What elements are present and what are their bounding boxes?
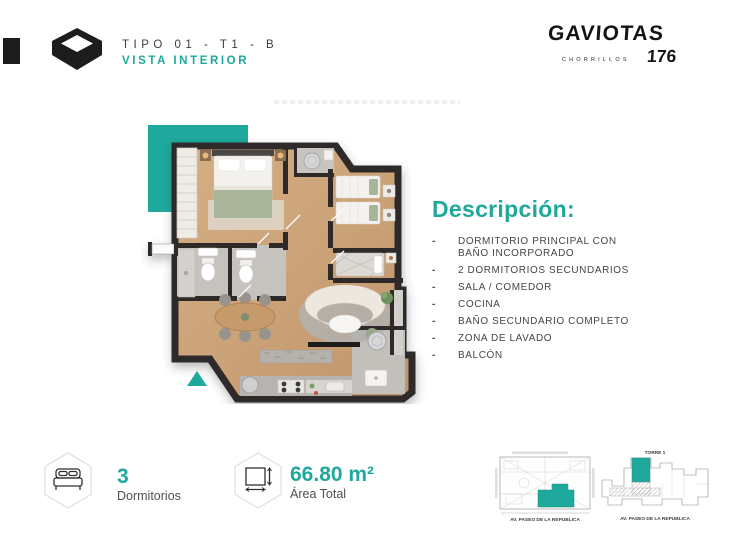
list-item: - SALA / COMEDOR xyxy=(432,282,632,294)
hatched-corridor-band xyxy=(610,488,660,496)
brand-district: CHORRILLOS xyxy=(562,57,630,67)
floor-plan-image xyxy=(140,112,430,404)
area-stat: 66.80 m² Área Total xyxy=(290,465,374,501)
list-item: - DORMITORIO PRINCIPAL CON BAÑO INCORPOR… xyxy=(432,236,632,260)
tower-section-map: TORRE 1 AV. PASEO DE LA REPUBLICA xyxy=(598,444,712,524)
site-location-map: AV. PASEO DE LA REPUBLICA xyxy=(494,450,596,524)
tower-label: TORRE 1 xyxy=(645,450,666,456)
developer-logo-icon xyxy=(50,26,104,72)
description-section: Descripción: - DORMITORIO PRINCIPAL CON … xyxy=(432,196,632,367)
bullet-dash: - xyxy=(432,350,458,362)
bedrooms-label: Dormitorios xyxy=(117,489,181,503)
view-label: VISTA INTERIOR xyxy=(122,55,278,67)
brand-number: 176 xyxy=(646,46,677,67)
bullet-dash: - xyxy=(432,316,458,328)
bedrooms-value: 3 xyxy=(117,467,181,487)
highlighted-tower-unit xyxy=(632,458,650,482)
dimension-line xyxy=(502,512,588,515)
area-label: Área Total xyxy=(290,487,374,501)
floor-plan-body xyxy=(148,146,412,399)
dining-furniture xyxy=(215,292,275,342)
brand-logo: GAVIOTAS CHORRILLOS 176 xyxy=(548,22,678,67)
building-footprint-outline xyxy=(602,458,708,505)
bedrooms-stat: 3 Dormitorios xyxy=(117,467,181,503)
area-stat-hexagon xyxy=(233,452,283,509)
description-list: - DORMITORIO PRINCIPAL CON BAÑO INCORPOR… xyxy=(432,236,632,362)
map-caption: AV. PASEO DE LA REPUBLICA xyxy=(620,516,690,522)
list-item: - ZONA DE LAVADO xyxy=(432,333,632,345)
entrance-triangle-marker xyxy=(187,371,207,386)
list-item: - BAÑO SECUNDARIO COMPLETO xyxy=(432,316,632,328)
entry-door xyxy=(148,242,178,256)
description-title: Descripción: xyxy=(432,196,632,223)
bullet-dash: - xyxy=(432,236,458,260)
bullet-dash: - xyxy=(432,299,458,311)
plan-type-label: TIPO 01 - T1 - B xyxy=(122,39,278,51)
list-item: - COCINA xyxy=(432,299,632,311)
map-caption: AV. PASEO DE LA REPUBLICA xyxy=(510,517,580,523)
bullet-dash: - xyxy=(432,282,458,294)
area-value: 66.80 m² xyxy=(290,465,374,485)
corner-accent-block xyxy=(3,38,20,64)
list-item: - BALCÓN xyxy=(432,350,632,362)
bullet-dash: - xyxy=(432,333,458,345)
plan-type-header: TIPO 01 - T1 - B VISTA INTERIOR xyxy=(122,39,278,67)
list-item: - 2 DORMITORIOS SECUNDARIOS xyxy=(432,265,632,277)
bullet-dash: - xyxy=(432,265,458,277)
fine-print-line xyxy=(274,100,460,104)
bedrooms-stat-hexagon xyxy=(43,452,93,509)
brand-name: GAVIOTAS xyxy=(547,22,679,46)
